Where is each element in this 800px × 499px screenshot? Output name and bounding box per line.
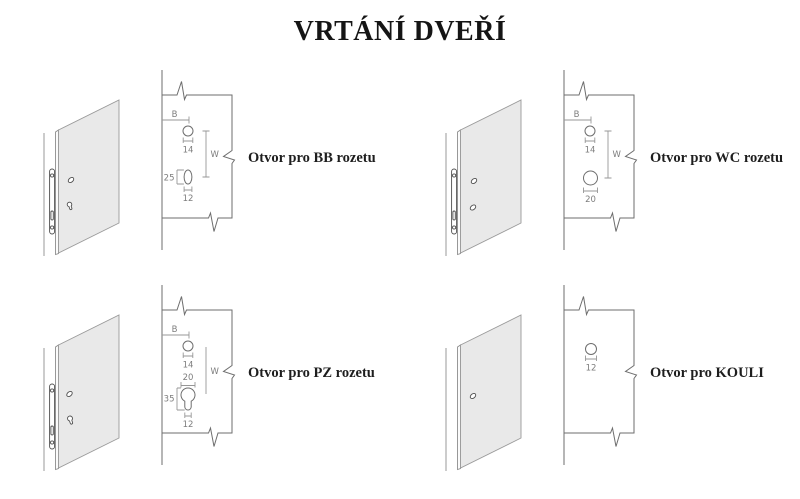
panel-outline-break-arrow [564,82,637,232]
door-perspective [446,100,521,256]
faceplate-body [50,384,55,449]
dimension-w-line [605,131,612,178]
dimension-12-label: 12 [586,364,597,374]
dimension-20-line [584,188,598,194]
dimension-12-line [185,413,191,419]
panel-label: Otvor pro WC rozetu [650,150,783,166]
dimension-14-line [183,353,193,359]
technical-drawing: B 14 W 25 12 [162,70,235,250]
faceplate-screw-top [51,174,54,177]
panel-bb-rosette: B 14 W 25 12 Otvor pro BB rozetu [10,68,400,273]
door-edge [458,130,461,255]
dimension-14-line [585,138,595,144]
dimension-b-label: B [172,110,178,120]
technical-drawing: B 14 W 20 [564,70,637,250]
dimension-12-line [184,187,192,193]
panel-label: Otvor pro KOULI [650,365,764,381]
door-drilling-diagram-page: { "title": "VRTÁNÍ DVEŘÍ", "colors": { "… [0,0,800,499]
door-perspective [44,100,119,256]
faceplate-body [452,169,457,234]
faceplate-screw-bottom [51,226,54,229]
door-face [461,100,522,253]
dimension-20-label: 20 [183,373,194,383]
spindle-hole [585,126,595,136]
door-face [461,315,522,468]
panel-outline-break-arrow [162,297,235,447]
panel-label: Otvor pro BB rozetu [248,150,376,166]
lock-faceplate [50,169,55,234]
dimension-14-label: 14 [183,361,194,371]
door-perspective [446,315,521,471]
faceplate-screw-bottom [51,441,54,444]
dimension-25-line [177,170,184,184]
panel-kouli-knob: 12 Otvor pro KOULI [412,283,800,488]
dimension-25-label: 25 [164,174,175,184]
panel-pz-rosette: B 14 W 20 35 12 Otvor pro PZ rozetu [10,283,400,488]
bb-lock-hole [184,170,192,184]
dimension-35-label: 35 [164,395,175,405]
dimension-w-label: W [613,150,622,160]
technical-drawing: B 14 W 20 35 12 [162,285,235,465]
panel-wc-rosette: B 14 W 20 Otvor pro WC rozetu [412,68,800,273]
technical-drawing: 12 [564,285,637,465]
lock-faceplate [50,384,55,449]
faceplate-body [50,169,55,234]
door-edge [458,345,461,470]
dimension-14-label: 14 [585,146,596,156]
panel-label: Otvor pro PZ rozetu [248,365,375,381]
panel-outline-break-arrow [564,297,637,447]
dimension-w-label: W [211,150,220,160]
door-perspective [44,315,119,471]
latch-slot [51,211,53,220]
faceplate-screw-bottom [453,226,456,229]
door-face [59,100,120,253]
knob-drill-hole [586,344,597,355]
panel-outline-break-arrow [162,82,235,232]
lock-faceplate [452,169,457,234]
dimension-12-label: 12 [183,194,194,204]
dimension-12-line [586,356,597,362]
dimension-14-line [183,138,193,144]
spindle-hole [183,341,193,351]
door-face [59,315,120,468]
pz-cylinder-hole [181,388,195,410]
dimension-w-line [203,131,210,177]
wc-hole [584,171,598,185]
faceplate-screw-top [453,174,456,177]
dimension-b-label: B [574,110,580,120]
latch-slot [51,426,53,435]
dimension-14-label: 14 [183,146,194,156]
dimension-12-label: 12 [183,420,194,430]
latch-slot [453,211,455,220]
dimension-20-label: 20 [585,195,596,205]
spindle-hole [183,126,193,136]
dimension-w-label: W [211,367,220,377]
faceplate-screw-top [51,389,54,392]
page-title: VRTÁNÍ DVEŘÍ [0,16,800,48]
dimension-b-label: B [172,325,178,335]
